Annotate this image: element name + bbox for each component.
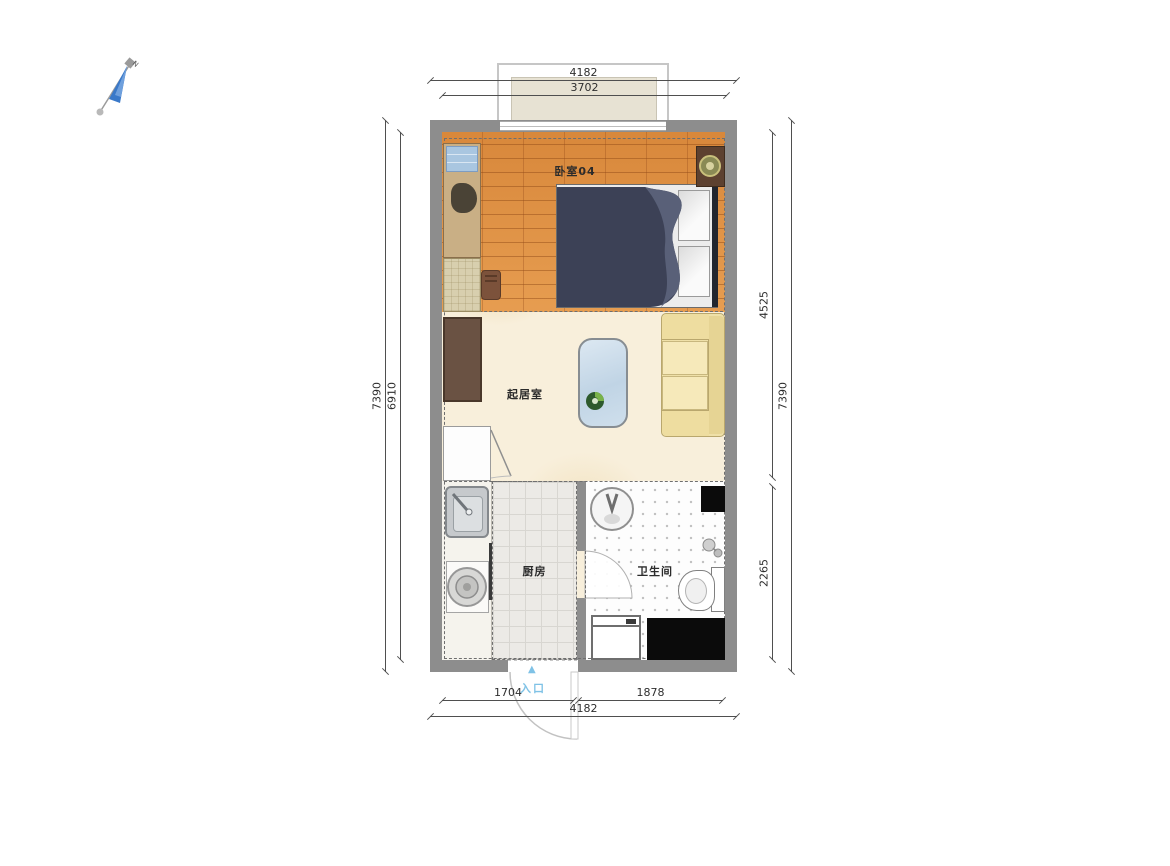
dim-bottom-left: 1704 — [442, 700, 574, 701]
sofa — [661, 313, 725, 437]
sofa-armrest — [662, 410, 709, 436]
dim-value: 7390 — [778, 382, 789, 410]
floor-plan-canvas: N — [0, 0, 1170, 866]
clothes-icon — [451, 183, 477, 213]
dim-value: 4182 — [570, 67, 598, 78]
toilet-seat — [685, 578, 707, 604]
living-kitchen-boundary — [444, 481, 723, 482]
dim-value: 1878 — [637, 687, 665, 698]
wardrobe — [443, 143, 481, 258]
plant-icon — [584, 390, 606, 412]
coffee-table — [578, 338, 628, 428]
blanket-icon — [557, 185, 691, 307]
living-room-label: 起居室 — [480, 388, 570, 402]
dim-value: 1704 — [494, 687, 522, 698]
shower-icon — [700, 536, 726, 562]
wardrobe-shelf — [446, 146, 478, 172]
dim-value: 2265 — [759, 559, 770, 587]
dim-value: 4182 — [570, 703, 598, 714]
bathroom-door-opening — [585, 551, 586, 598]
dim-bottom-outer: 4182 — [430, 716, 737, 717]
entry-arrow-icon: ▲ — [528, 664, 536, 675]
compass-icon: N — [88, 52, 144, 122]
sofa-cushion — [662, 376, 708, 410]
basin-icon — [589, 486, 635, 532]
wall-right — [725, 120, 737, 672]
dim-value: 7390 — [372, 382, 383, 410]
bedroom-living-boundary — [444, 311, 723, 312]
cabinet-door-icon — [489, 426, 519, 484]
chair — [481, 270, 501, 300]
dim-left-inner: 6910 — [400, 132, 401, 660]
shower-mat — [647, 618, 725, 660]
headboard — [712, 185, 718, 307]
dim-value: 4525 — [759, 291, 770, 319]
dim-right-outer: 7390 — [791, 120, 792, 672]
bedroom-label: 卧室04 — [530, 165, 620, 179]
bathroom-black-unit — [701, 486, 725, 512]
bathroom-label: 卫生间 — [610, 565, 700, 579]
entrance-label: 入口 — [520, 680, 546, 696]
stove-icon — [446, 561, 489, 613]
dim-bottom-right: 1878 — [578, 700, 723, 701]
desk — [443, 258, 481, 312]
lamp-icon — [697, 147, 724, 186]
kitchen-sink-icon — [445, 486, 489, 538]
washer-control — [626, 619, 636, 624]
dim-value: 6910 — [387, 382, 398, 410]
dim-top-inner: 3702 — [442, 95, 727, 96]
tv-cabinet — [443, 317, 482, 402]
dim-right-lower: 2265 — [772, 486, 773, 660]
dim-value: 3702 — [571, 82, 599, 93]
sofa-armrest — [662, 314, 709, 340]
kitchen-label: 厨房 — [492, 565, 577, 579]
nightstand — [696, 146, 725, 187]
window-top — [500, 121, 666, 131]
sofa-back — [708, 316, 724, 434]
storage-cabinet — [443, 426, 491, 481]
sofa-cushion — [662, 341, 708, 375]
bed — [556, 184, 718, 308]
wall-left — [430, 120, 442, 672]
faucet-icon — [449, 490, 479, 520]
dim-right-upper: 4525 — [772, 132, 773, 478]
